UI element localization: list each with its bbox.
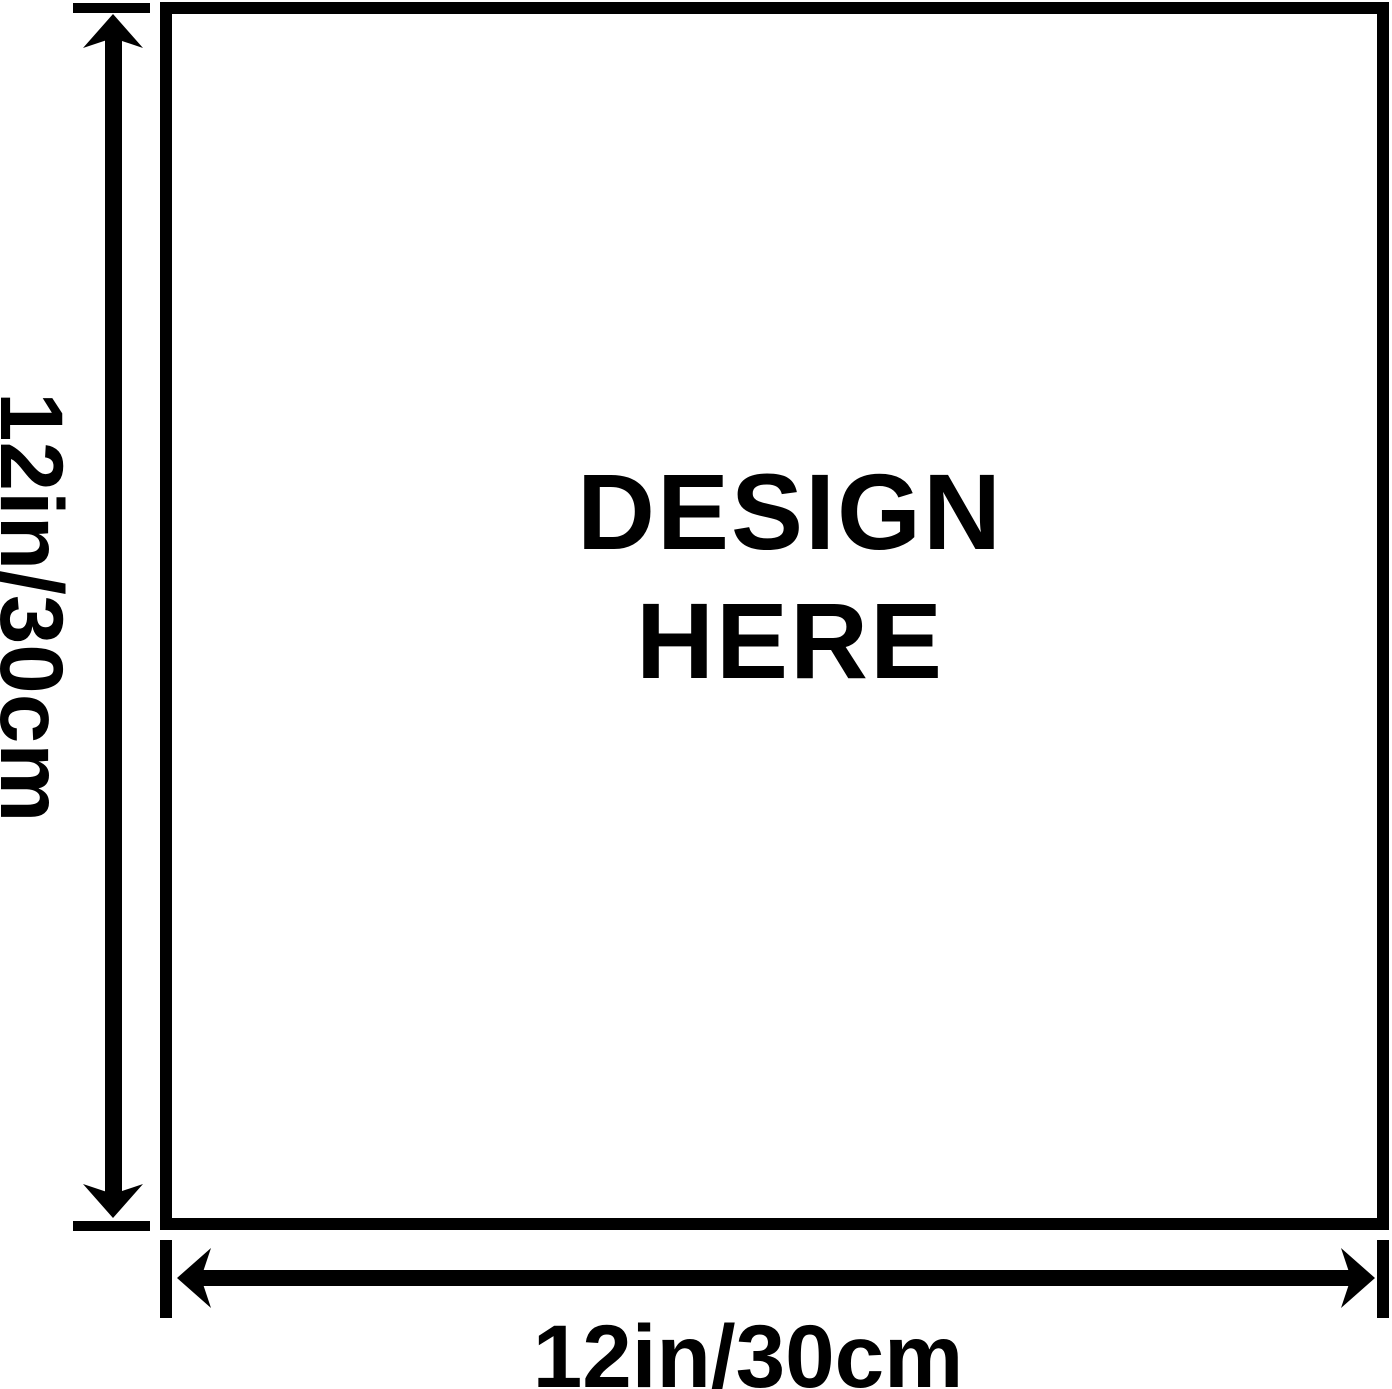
up-arrowhead-icon [83, 14, 143, 48]
height-arrow-shaft [105, 30, 122, 1200]
right-arrowhead-icon [1341, 1248, 1375, 1308]
height-top-tick [73, 3, 150, 13]
design-placeholder-text: DESIGN HERE [490, 448, 1090, 705]
width-right-tick [1377, 1240, 1389, 1318]
down-arrowhead-icon [83, 1184, 143, 1218]
height-bottom-tick [73, 1221, 150, 1231]
width-arrow-shaft [195, 1270, 1355, 1286]
left-arrowhead-icon [177, 1248, 211, 1308]
design-text-line1: DESIGN [490, 448, 1090, 577]
width-dimension-label: 12in/30cm [498, 1312, 998, 1389]
design-text-line2: HERE [490, 577, 1090, 706]
dimension-diagram: DESIGN HERE 12in/30cm 12in/30cm [0, 0, 1392, 1389]
height-dimension-label: 12in/30cm [0, 392, 76, 822]
width-left-tick [160, 1240, 172, 1318]
